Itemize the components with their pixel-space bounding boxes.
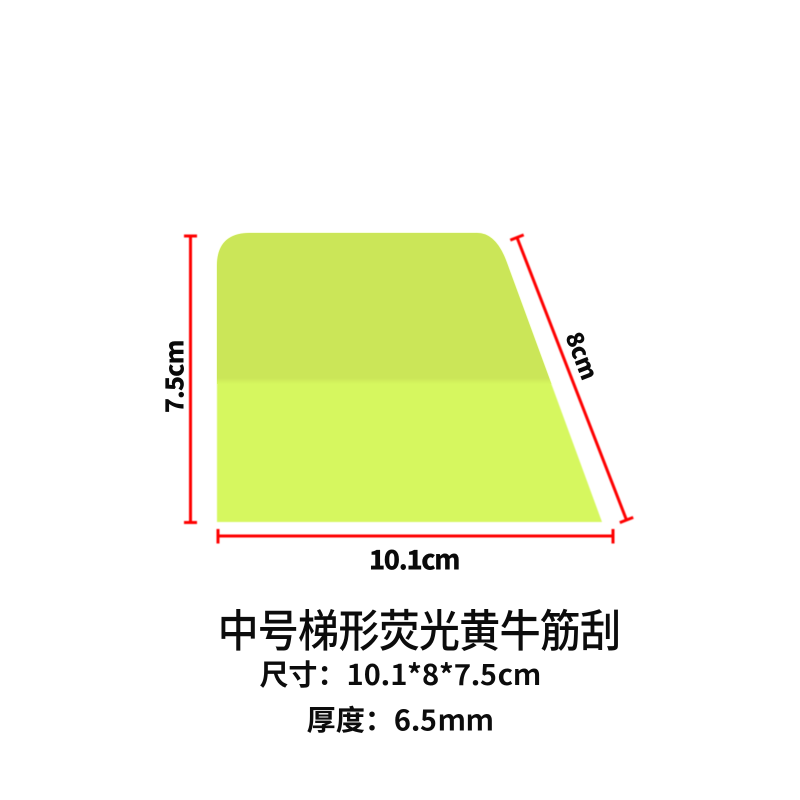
svg-text:尺寸：10.1*8*7.5cm: 尺寸：10.1*8*7.5cm (259, 652, 540, 694)
svg-text:厚度：6.5mm: 厚度：6.5mm (307, 698, 494, 740)
svg-text:10.1cm: 10.1cm (369, 539, 459, 578)
svg-text:中号梯形荧光黄牛筋刮: 中号梯形荧光黄牛筋刮 (218, 596, 621, 661)
svg-text:7.5cm: 7.5cm (156, 340, 192, 413)
svg-text:8cm: 8cm (558, 326, 607, 384)
